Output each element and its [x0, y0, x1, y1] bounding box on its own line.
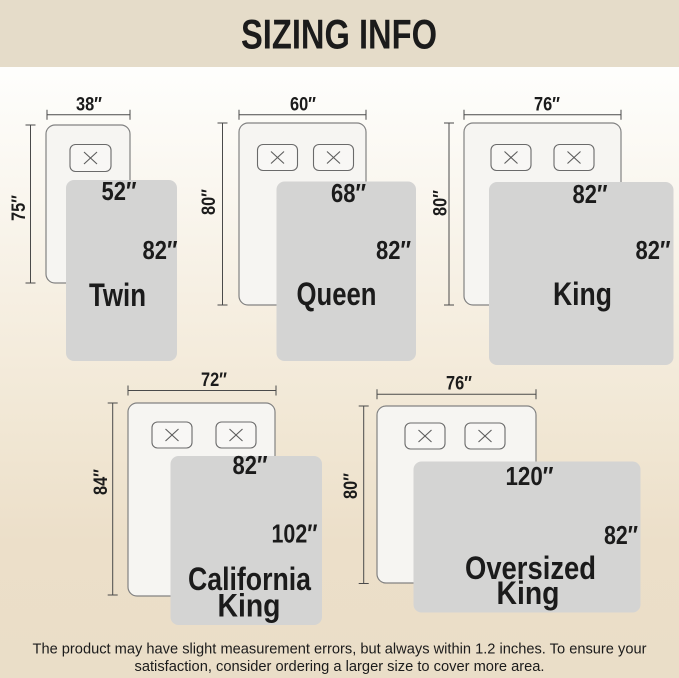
svg-text:King: King	[497, 575, 560, 611]
svg-text:52″: 52″	[102, 176, 137, 206]
svg-text:120″: 120″	[506, 461, 554, 491]
svg-text:82″: 82″	[636, 235, 671, 265]
svg-text:76″: 76″	[534, 94, 560, 116]
svg-text:The product may have slight me: The product may have slight measurement …	[33, 641, 647, 658]
svg-text:King: King	[218, 588, 281, 624]
svg-text:75″: 75″	[8, 195, 30, 221]
svg-text:satisfaction, consider orderin: satisfaction, consider ordering a larger…	[135, 658, 545, 675]
svg-text:84″: 84″	[90, 469, 112, 495]
svg-text:80″: 80″	[198, 189, 220, 215]
svg-text:82″: 82″	[604, 520, 638, 550]
svg-text:76″: 76″	[446, 373, 472, 395]
svg-text:72″: 72″	[201, 369, 227, 391]
svg-text:82″: 82″	[143, 235, 178, 265]
svg-text:68″: 68″	[331, 178, 366, 208]
svg-text:38″: 38″	[76, 94, 102, 116]
svg-text:80″: 80″	[430, 190, 452, 216]
svg-text:82″: 82″	[573, 179, 608, 209]
svg-text:Queen: Queen	[297, 276, 377, 312]
svg-text:102″: 102″	[272, 519, 318, 549]
svg-text:King: King	[553, 276, 612, 312]
svg-text:SIZING INFO: SIZING INFO	[241, 11, 437, 58]
svg-text:82″: 82″	[376, 235, 411, 265]
svg-text:Twin: Twin	[89, 277, 146, 313]
svg-text:80″: 80″	[340, 473, 362, 499]
svg-text:82″: 82″	[233, 450, 268, 480]
svg-text:60″: 60″	[290, 94, 316, 116]
